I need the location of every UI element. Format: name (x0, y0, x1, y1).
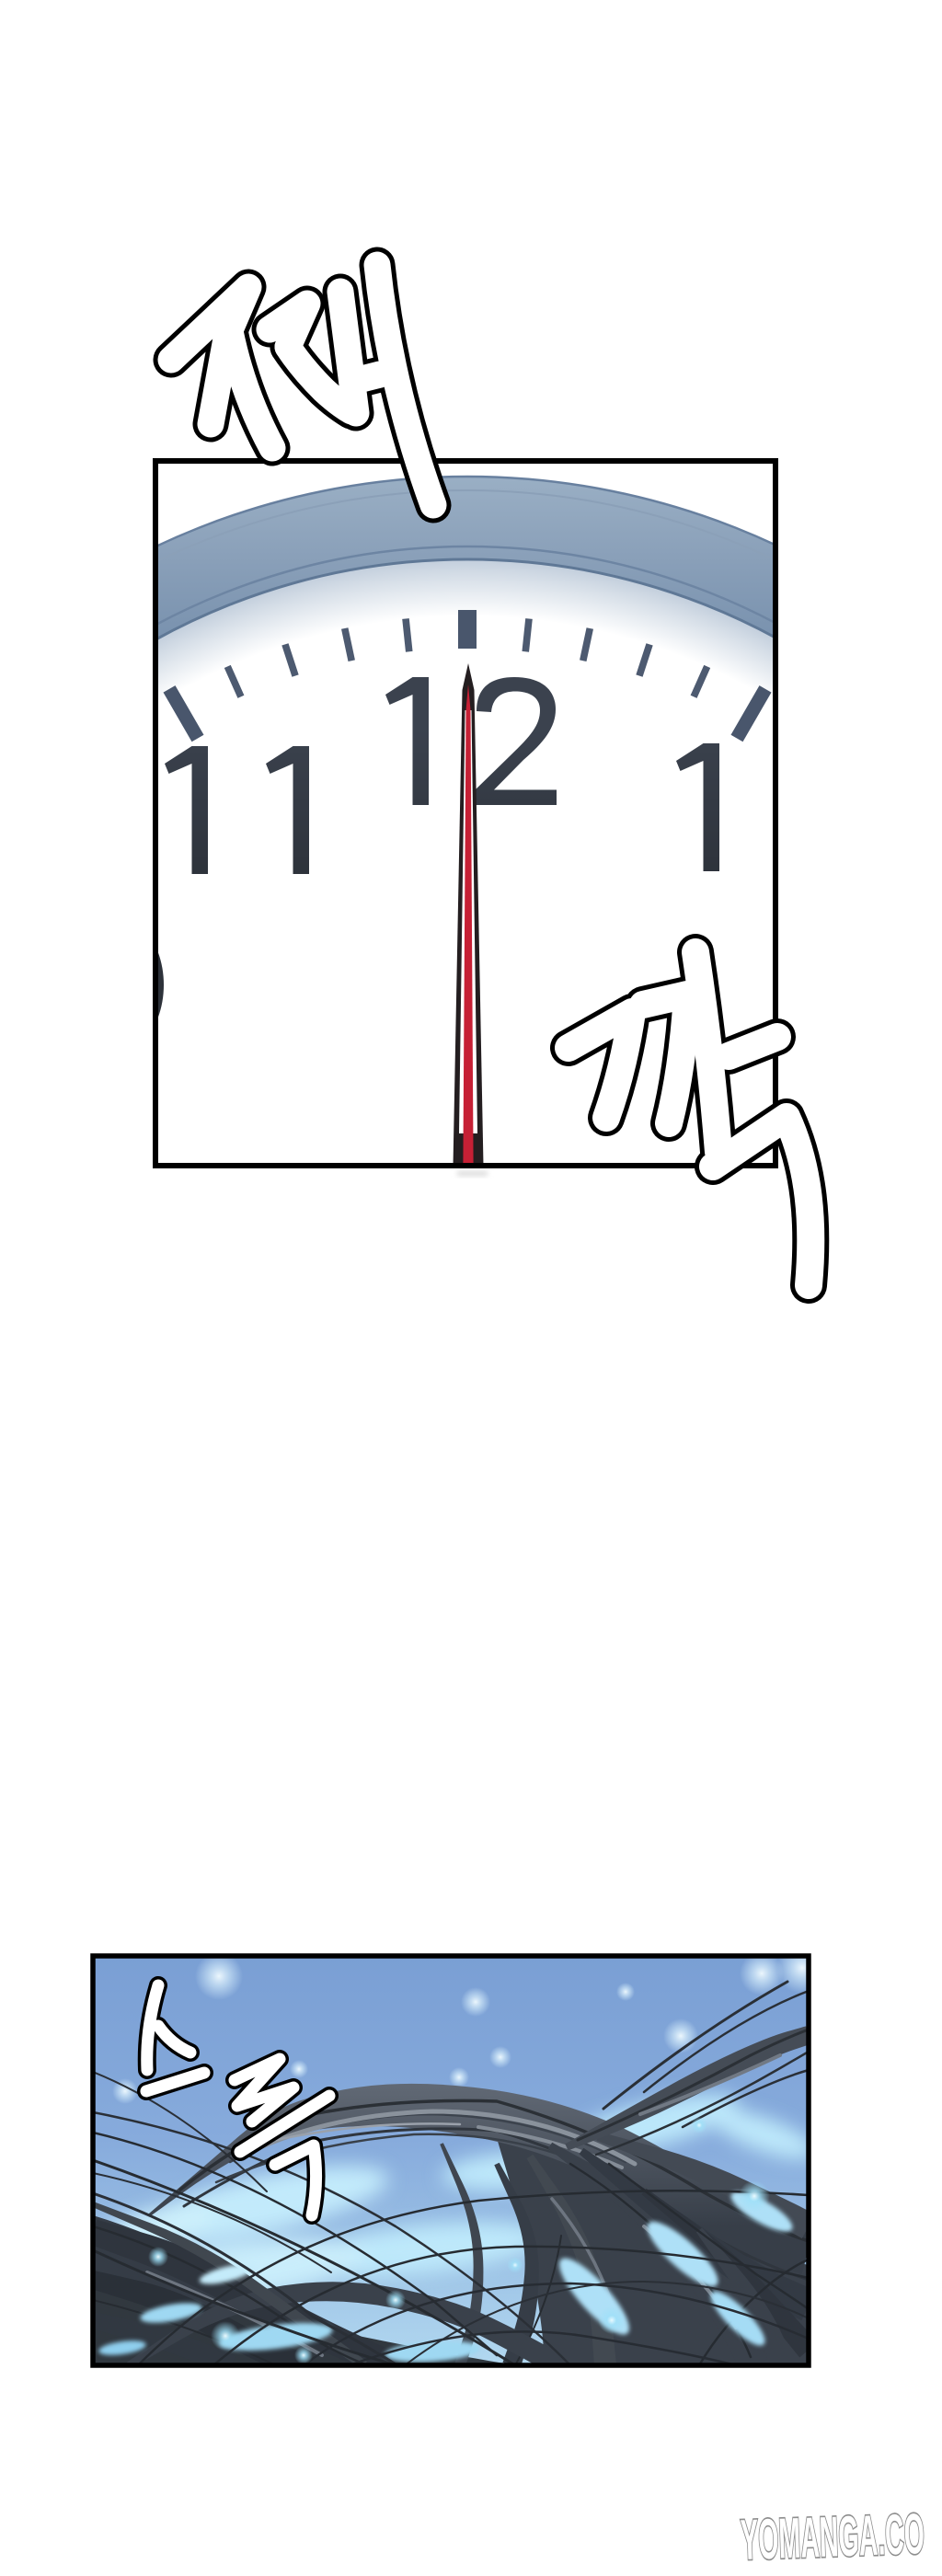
svg-text:YOMANGA.CO: YOMANGA.CO (740, 2502, 925, 2572)
